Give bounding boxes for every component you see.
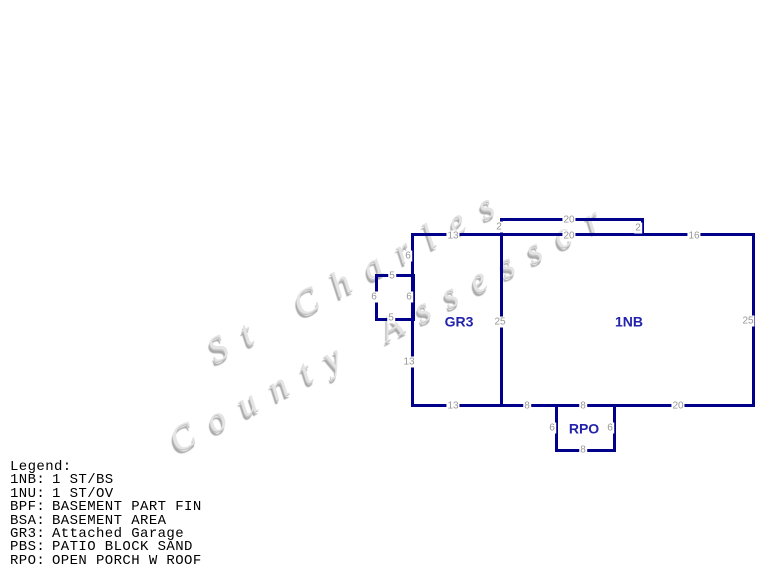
legend-rows: 1NB:1 ST/BS1NU:1 ST/OVBPF:BASEMENT PART … <box>10 474 202 568</box>
dimension-label: 20 <box>671 401 684 412</box>
dimension-label: 6 <box>548 423 556 434</box>
dimension-label: 2 <box>495 222 503 233</box>
dimension-label: 8 <box>579 401 587 412</box>
dimension-label: 6 <box>405 292 413 303</box>
legend-abbr: RPO: <box>10 555 52 568</box>
dimension-label: 20 <box>562 231 575 242</box>
dimension-label: 13 <box>446 231 459 242</box>
dimension-label: 16 <box>687 231 700 242</box>
dimension-label: 8 <box>579 445 587 456</box>
dimension-label: 13 <box>446 401 459 412</box>
legend-desc: OPEN PORCH W ROOF <box>52 553 202 569</box>
dimension-label: 6 <box>404 251 412 262</box>
dimension-label: 2 <box>634 223 642 234</box>
assessor-sketch-page: St Charles County Assessor 2022132016656… <box>0 0 762 587</box>
dimension-label: 25 <box>741 316 754 327</box>
legend: Legend: 1NB:1 ST/BS1NU:1 ST/OVBPF:BASEME… <box>10 461 202 568</box>
dimension-label: 20 <box>562 215 575 226</box>
dimension-label: 13 <box>402 357 415 368</box>
dimension-label: 25 <box>493 317 506 328</box>
dimension-label: 8 <box>523 401 531 412</box>
legend-entry: RPO:OPEN PORCH W ROOF <box>10 555 202 568</box>
dimension-label: 5 <box>387 313 395 324</box>
area-label-1nb: 1NB <box>613 315 645 330</box>
dimension-label: 6 <box>370 292 378 303</box>
area-label-gr3: GR3 <box>443 315 476 330</box>
dimension-label: 6 <box>606 423 614 434</box>
area-label-rpo: RPO <box>567 422 601 437</box>
dimension-label: 5 <box>388 271 396 282</box>
